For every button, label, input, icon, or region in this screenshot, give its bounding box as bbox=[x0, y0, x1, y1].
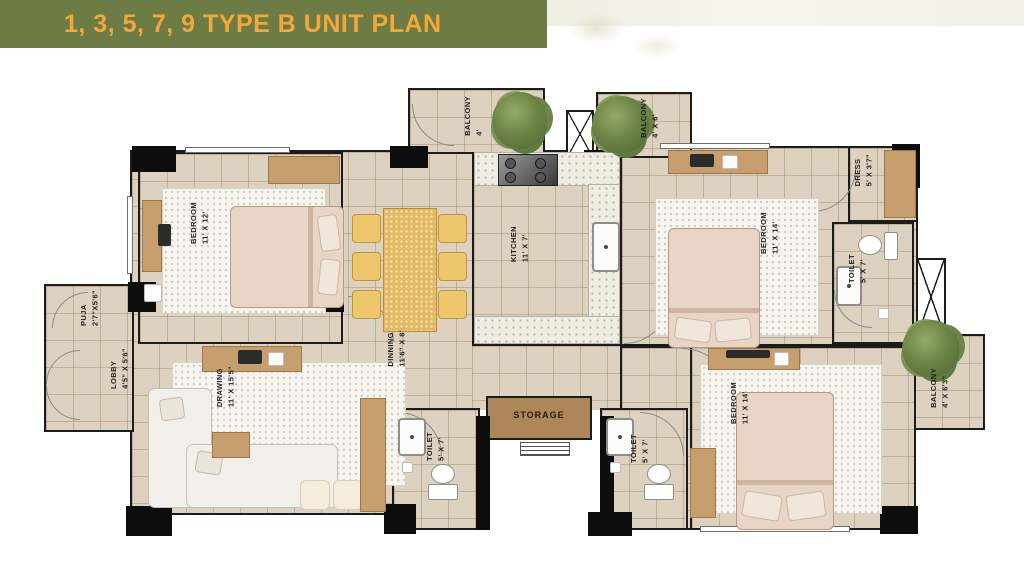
switch bbox=[878, 308, 889, 319]
desk bbox=[668, 150, 768, 174]
room-label-toilet3: TOILET5' X 7' bbox=[628, 434, 651, 463]
nightstand bbox=[144, 284, 162, 302]
column bbox=[880, 506, 918, 534]
window bbox=[185, 147, 290, 153]
double-bed bbox=[668, 228, 760, 348]
column bbox=[126, 506, 172, 536]
sofa-cushion bbox=[159, 396, 186, 421]
dining-chair bbox=[438, 214, 467, 243]
desk-chair bbox=[158, 224, 171, 246]
room-label-balcony-top-right: BALCONY4' X 6' bbox=[638, 98, 661, 138]
room-label-kitchen: KITCHEN11' X 7' bbox=[508, 226, 531, 262]
entrance-steps bbox=[520, 442, 570, 456]
room-label-lobby: LOBBY4'5" X 5'6" bbox=[108, 348, 131, 389]
switch bbox=[402, 462, 413, 473]
wardrobe bbox=[690, 448, 716, 518]
double-bed bbox=[230, 206, 344, 308]
printer bbox=[722, 155, 738, 169]
room-label-toilet2: TOILET5' X 7' bbox=[424, 432, 447, 461]
leaf-watermark-icon bbox=[552, 4, 702, 74]
room-label-balcony-top-left: BALCONY4' bbox=[462, 96, 485, 136]
column bbox=[132, 146, 176, 172]
toilet-wc bbox=[644, 464, 674, 508]
dining-chair bbox=[352, 252, 381, 281]
wardrobe bbox=[884, 150, 916, 218]
entry-wall-left bbox=[476, 416, 490, 530]
page-title: 1, 3, 5, 7, 9 TYPE B UNIT PLAN bbox=[64, 10, 442, 39]
room-label-dinning: DINNING11'6" X 8' bbox=[385, 330, 408, 367]
dining-chair bbox=[438, 252, 467, 281]
column bbox=[384, 504, 416, 534]
room-label-storage: STORAGE bbox=[486, 410, 592, 420]
window bbox=[660, 143, 770, 149]
dining-table bbox=[383, 208, 437, 332]
double-bed bbox=[736, 392, 834, 530]
dining-chair bbox=[438, 290, 467, 319]
kitchen-counter-bottom bbox=[474, 316, 620, 344]
cabinet bbox=[360, 398, 386, 512]
room-label-puja: PUJA2'7"X5'6" bbox=[78, 290, 101, 326]
room-label-dress: DRESS5' X 3'7" bbox=[852, 154, 875, 186]
printer bbox=[268, 352, 284, 366]
column bbox=[390, 146, 428, 168]
laptop bbox=[690, 154, 714, 167]
room-label-bedroom2: BEDROOM11' X 14' bbox=[758, 212, 781, 254]
laptop bbox=[238, 350, 262, 364]
toilet-sink bbox=[398, 418, 426, 456]
room-label-drawing: DRAWING11' X 15'5" bbox=[214, 366, 237, 407]
ottoman bbox=[300, 480, 330, 510]
plant-icon bbox=[492, 92, 548, 150]
window bbox=[127, 196, 133, 274]
monitor bbox=[726, 350, 770, 358]
room-label-balcony-right: BALCONY4' X 6'3" bbox=[928, 368, 951, 408]
wardrobe bbox=[268, 156, 340, 184]
title-banner: 1, 3, 5, 7, 9 TYPE B UNIT PLAN bbox=[0, 0, 547, 48]
kitchen-sink bbox=[592, 222, 620, 272]
room-label-bedroom3: BEDROOM11' X 14' bbox=[728, 382, 751, 424]
ottoman bbox=[333, 480, 363, 510]
stove bbox=[498, 154, 558, 186]
room-label-toilet1: TOILET5' X 7' bbox=[846, 254, 869, 283]
dining-chair bbox=[352, 214, 381, 243]
room-label-bedroom1: BEDROOM11' X 12' bbox=[188, 202, 211, 244]
toilet-wc bbox=[428, 464, 458, 508]
coffee-table bbox=[212, 432, 250, 458]
printer bbox=[774, 352, 789, 366]
dining-chair bbox=[352, 290, 381, 319]
switch bbox=[610, 462, 621, 473]
column bbox=[588, 512, 632, 536]
